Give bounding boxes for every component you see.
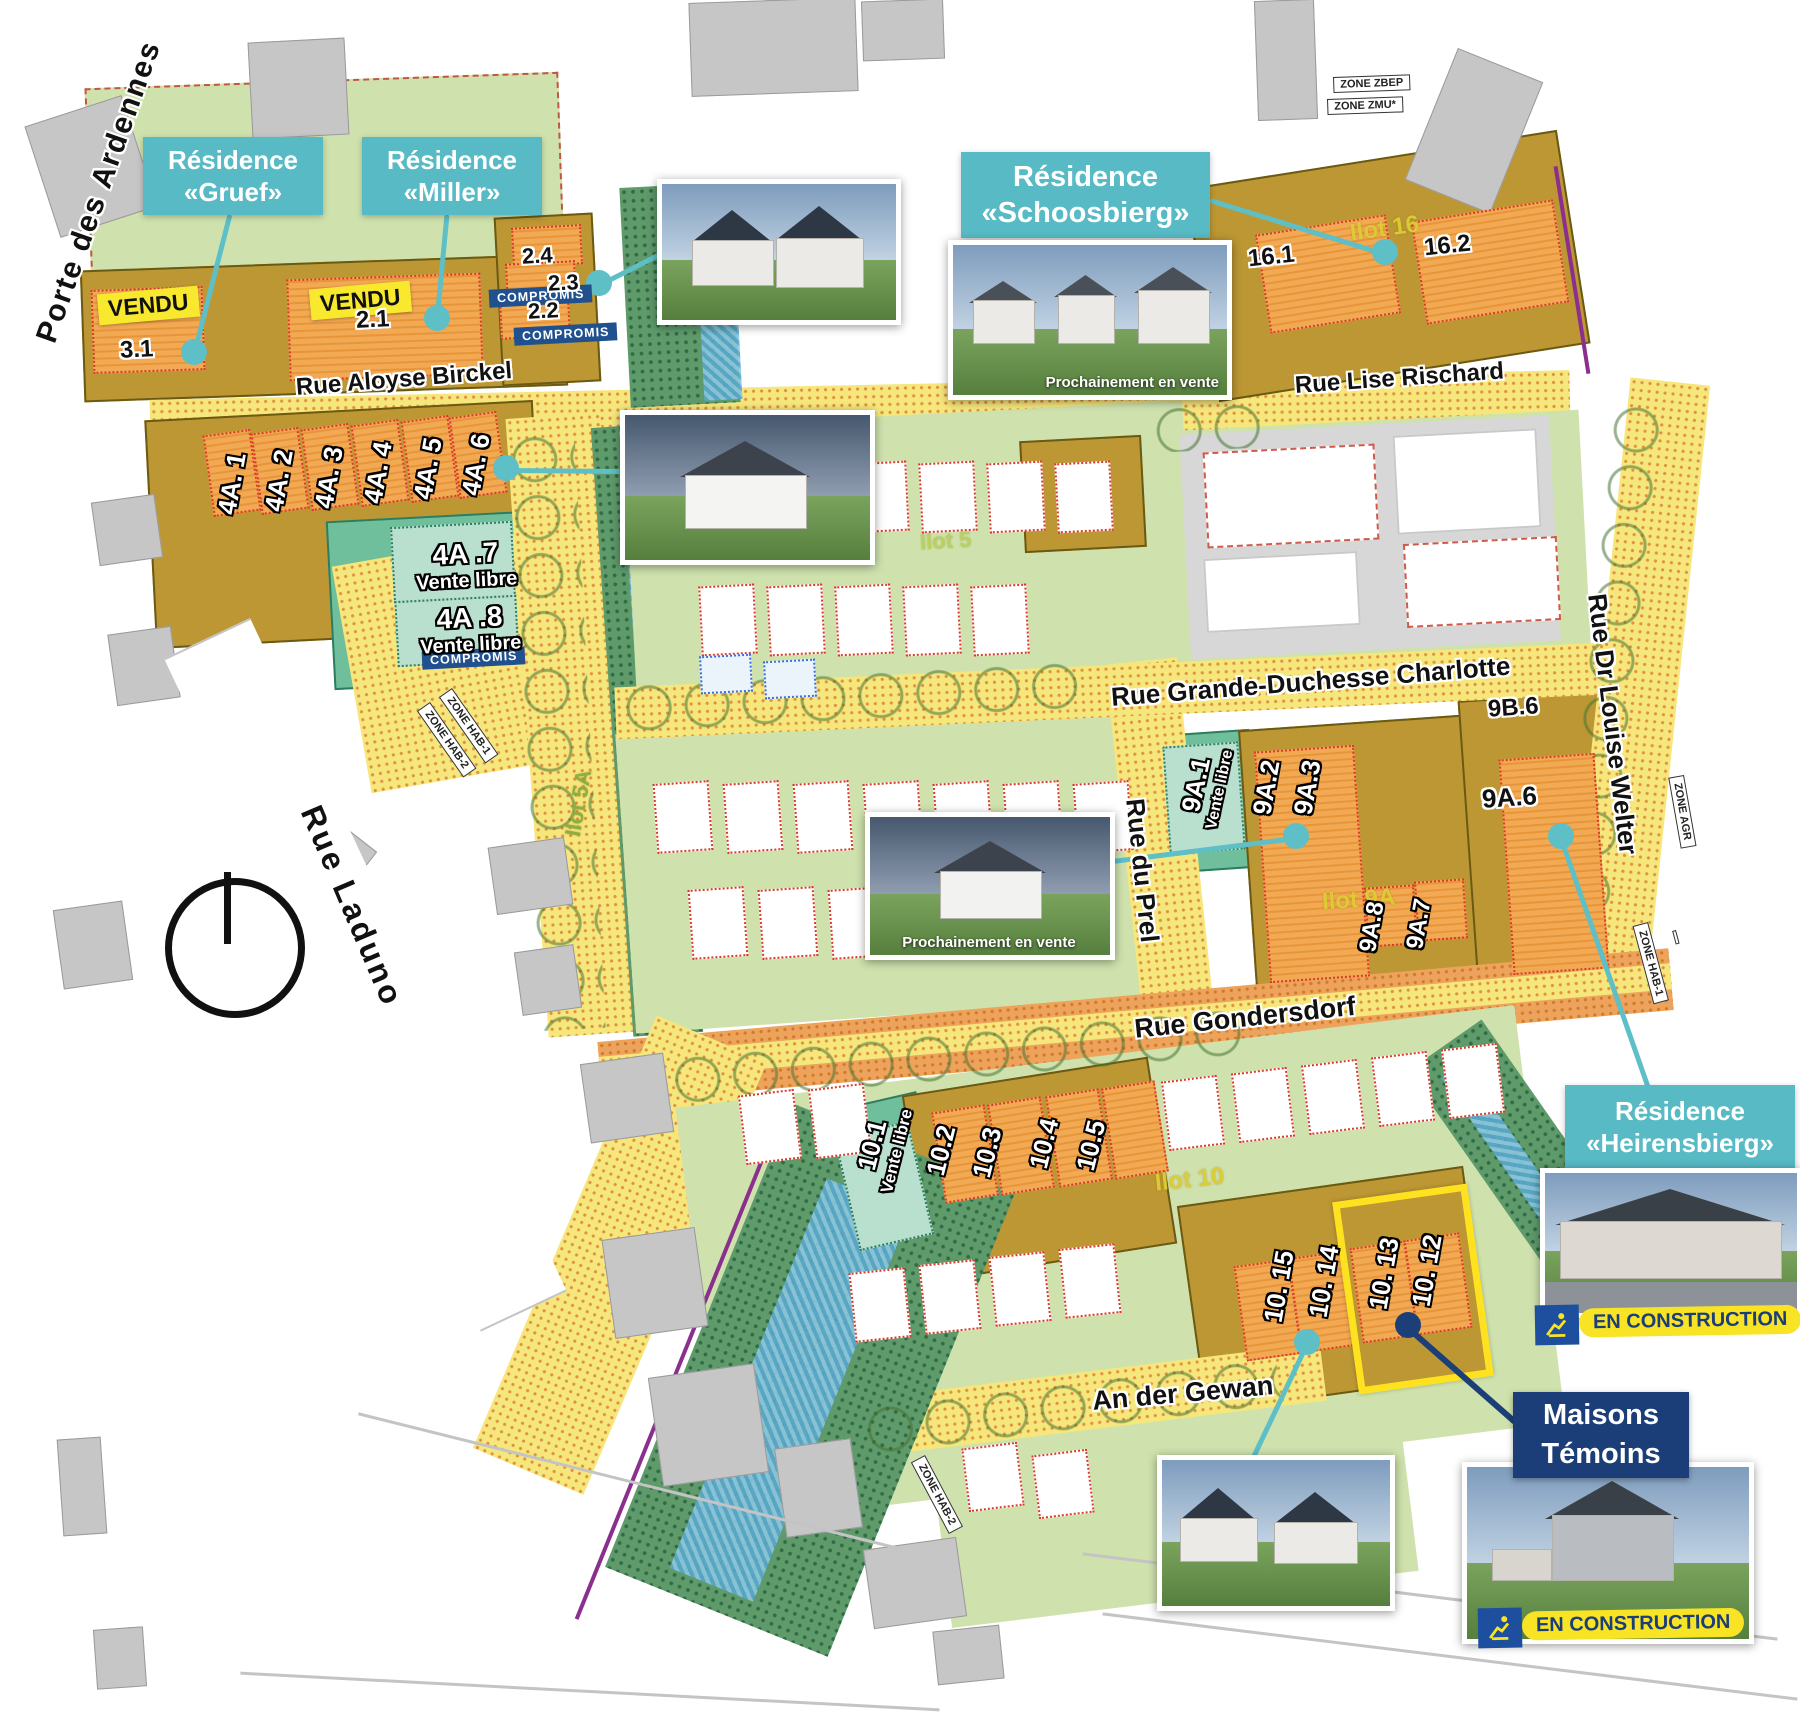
photo-garage [1492, 1549, 1552, 1581]
residence-label-miller: Résidence «Miller» [362, 137, 542, 215]
lot-chip [688, 886, 749, 960]
building-east-2 [1393, 428, 1542, 534]
photo-house [776, 238, 864, 288]
lot-label-9a6: 9A.6 [1481, 780, 1538, 815]
connector-dot [1283, 823, 1309, 849]
photo-caption: Prochainement en vente [876, 934, 1102, 951]
lot-label-23: 2.3 [547, 269, 579, 297]
building [601, 1227, 708, 1339]
building [248, 38, 350, 140]
en-construction-badge-heirensbierg: EN CONSTRUCTION [1535, 1301, 1800, 1346]
north-compass-icon [165, 878, 305, 1018]
lot-chip [1231, 1067, 1295, 1143]
en-construction-label: EN CONSTRUCTION [1579, 1305, 1800, 1338]
photo-building [1560, 1221, 1782, 1279]
photo-house-render-2 [620, 410, 875, 565]
photo-building [1058, 295, 1115, 344]
lot-label-21: 2.1 [355, 305, 390, 335]
building [688, 0, 858, 97]
lot-chip [1161, 1075, 1225, 1151]
building [1254, 0, 1318, 121]
zone-label-zbep: ZONE ZBEP [1333, 74, 1410, 93]
construction-worker-icon [1478, 1608, 1523, 1649]
trees-rischard [1149, 397, 1271, 453]
photo-house [1552, 1515, 1674, 1581]
building [514, 944, 582, 1016]
residence-label-gruef: Résidence «Gruef» [143, 137, 323, 215]
connector-dot [1294, 1329, 1320, 1355]
building [774, 1438, 863, 1538]
photo-building [973, 300, 1035, 344]
lot-chip [1301, 1059, 1365, 1135]
connector-photo2 [506, 468, 622, 474]
lot-chip [793, 780, 854, 854]
site-plan-map: Porte des Ardennes Rue Aloyse Birckel Ru… [0, 0, 1800, 1715]
maisons-temoins-callout: Maisons Témoins [1513, 1392, 1689, 1478]
lot-label-9b6: 9B.6 [1487, 692, 1540, 723]
lot-hatch-16 [1411, 199, 1569, 324]
residence-name-line: Résidence [362, 144, 542, 177]
building [53, 901, 133, 990]
lot-chip [918, 461, 978, 534]
connector-dot-navy [1395, 1312, 1421, 1338]
lot-chip [834, 584, 894, 657]
lot-chip [1054, 461, 1114, 534]
photo-heirensbierg-render [1540, 1168, 1800, 1318]
lot-chip [1031, 1449, 1094, 1519]
building [93, 1626, 147, 1689]
road-line [240, 1672, 939, 1712]
photo-house [692, 240, 774, 286]
photo-house [940, 871, 1042, 919]
photo-prel-render: Prochainement en vente [865, 812, 1115, 960]
lot-chip [698, 584, 758, 657]
residence-label-heirensbierg: Résidence «Heirensbierg» [1565, 1085, 1795, 1169]
residence-name-line: Résidence [961, 159, 1210, 195]
lot-chip [986, 461, 1046, 534]
lot-label-162: 16.2 [1423, 230, 1472, 263]
photo-house [1180, 1518, 1258, 1562]
lot-chip [723, 780, 784, 854]
residence-name-line: «Miller» [362, 176, 542, 209]
lot-label-31: 3.1 [119, 335, 154, 365]
connector-dot [493, 455, 519, 481]
residence-name-line: «Gruef» [143, 176, 323, 209]
photo-schoosbierg-render: Prochainement en vente [948, 240, 1232, 400]
building [932, 1625, 1004, 1686]
building-east-3 [1203, 551, 1361, 633]
ilot-label-5: Ilot 5 [919, 527, 972, 556]
photo-caption: Prochainement en vente [959, 374, 1219, 391]
residence-name-line: Résidence [1565, 1095, 1795, 1128]
lot-chip [766, 584, 826, 657]
zone-label-zmu: ZONE ZMU* [1327, 96, 1403, 115]
building [91, 494, 163, 566]
building [580, 1053, 674, 1144]
lot-label-161: 16.1 [1247, 241, 1296, 274]
lot-chip [988, 1251, 1051, 1326]
lot-chip [758, 886, 819, 960]
en-construction-label: EN CONSTRUCTION [1522, 1608, 1745, 1641]
photo-house [1274, 1522, 1358, 1564]
lot-label-4a8: 4A .8 Vente libre [399, 598, 542, 660]
building-east-1 [1203, 444, 1380, 549]
connector-dot [1548, 823, 1574, 849]
maisons-temoins-line: Témoins [1513, 1435, 1689, 1474]
en-construction-badge-temoins: EN CONSTRUCTION [1478, 1604, 1745, 1649]
photo-gewan-render [1157, 1455, 1395, 1611]
lot-chip [918, 1259, 981, 1334]
residence-name-line: «Heirensbierg» [1565, 1127, 1795, 1160]
lot-chip [848, 1267, 911, 1342]
zone-label-agr-east2 [1672, 930, 1679, 945]
lot-chip [1371, 1051, 1435, 1127]
lot-chip [738, 1089, 802, 1165]
building [863, 1537, 967, 1629]
lot-chip [902, 584, 962, 657]
lot-label-4a7: 4A .7 Vente libre [395, 534, 538, 596]
building [488, 837, 574, 915]
lot-chip [653, 780, 714, 854]
photo-building [1138, 290, 1210, 344]
photo-house [685, 475, 807, 529]
residence-name-line: «Schoosbierg» [961, 195, 1210, 231]
lot-chip [1058, 1243, 1121, 1318]
connector-dot [424, 305, 450, 331]
building [57, 1437, 108, 1537]
construction-worker-icon [1535, 1305, 1580, 1346]
lot-chip [1441, 1043, 1505, 1119]
maisons-temoins-line: Maisons [1513, 1396, 1689, 1435]
north-compass-needle [224, 872, 231, 944]
photo-house-render-1 [657, 179, 901, 325]
lot-label-24: 2.4 [521, 242, 553, 270]
building [861, 0, 945, 61]
residence-label-schoosbierg: Résidence «Schoosbierg» [961, 152, 1210, 238]
building-east-4 [1403, 536, 1561, 628]
lot-label-22: 2.2 [527, 297, 559, 325]
building [648, 1363, 769, 1487]
zone-label-agr-east: ZONE AGR [1668, 775, 1696, 848]
lot-chip-blue [763, 659, 817, 700]
connector-dot [181, 339, 207, 365]
lot-chip [961, 1442, 1024, 1512]
lot-chip [970, 584, 1030, 657]
lot-chip-blue [699, 654, 753, 695]
residence-name-line: Résidence [143, 144, 323, 177]
